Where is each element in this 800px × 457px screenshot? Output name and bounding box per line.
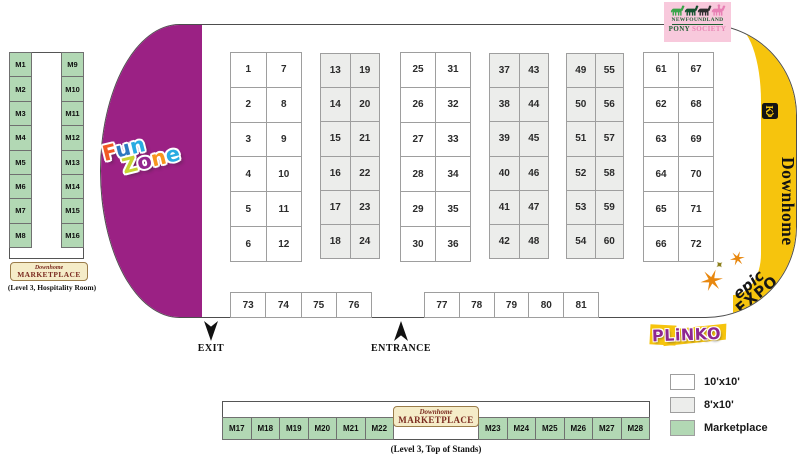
booth-cell: 19 [351,54,380,87]
marketplace-row-m23-m28: M23M24M25M26M27M28 [478,417,650,440]
booth-cell: 34 [436,157,470,191]
marketplace-cell: M15 [62,199,83,222]
entrance-arrow-icon [394,321,408,341]
legend: 10'x10' 8'x10' Marketplace [670,374,768,443]
booth-cell: 61 [644,53,678,87]
booth-cell: 71 [679,192,713,226]
booth-cell: 39 [490,122,519,155]
left-marketplace-box: M1M2M3M4M5M6M7M8 M9M10M11M12M13M14M15M16 [9,52,84,259]
booth-cell: 32 [436,88,470,122]
bottom-marketplace-box: M17M18M19M20M21M22 M23M24M25M26M27M28 Do… [222,401,650,440]
legend-label: Marketplace [704,422,768,434]
downhome-wordmark: Downhome [760,121,798,281]
marketplace-cell: M1 [10,53,31,76]
newfoundland-pony-society-box: NEWFOUNDLAND PONY SOCIETY [664,2,731,42]
booth-cell: 15 [321,122,350,155]
booth-cell: 62 [644,88,678,122]
booth-cell: 22 [351,157,380,190]
booth-cell: 66 [644,227,678,261]
marketplace-cell: M6 [10,175,31,198]
marketplace-column-m9-m16: M9M10M11M12M13M14M15M16 [61,52,84,248]
booth-cell: 76 [337,293,371,317]
booth-cell: 44 [520,88,549,121]
booth-cell: 52 [567,157,595,190]
booth-cell: 56 [596,88,624,121]
booth-cell: 53 [567,191,595,224]
booth-cell: 57 [596,122,624,155]
marketplace-cell: M27 [593,418,621,439]
booth-cell: 55 [596,54,624,87]
booth-cell: 2 [231,88,266,122]
pony-society-name: NEWFOUNDLAND [672,17,724,25]
marketplace-cell: M26 [565,418,593,439]
marketplace-cell: M25 [536,418,564,439]
legend-row: 10'x10' [670,374,768,390]
marketplace-cell: M16 [62,224,83,247]
pony-silhouettes-icon [669,4,727,17]
booth-cell: 16 [321,157,350,190]
marketplace-cell: M20 [309,418,337,439]
marketplace-cell: M12 [62,126,83,149]
booth-cell: 49 [567,54,595,87]
marketplace-cell: M10 [62,77,83,100]
legend-label: 10'x10' [704,376,740,388]
plinko-logo: PLiNKO [648,321,733,352]
booth-cell: 72 [679,227,713,261]
booth-cell: 13 [321,54,350,87]
booth-cell: 26 [401,88,435,122]
marketplace-cell: M7 [10,199,31,222]
booth-cell: 50 [567,88,595,121]
plinko-text: PLiNKO [652,324,722,345]
marketplace-cell: M23 [479,418,507,439]
booth-cell: 18 [321,225,350,258]
booth-cell: 1 [231,53,266,87]
top-of-stands-caption: (Level 3, Top of Stands) [222,444,650,454]
booth-cell: 73 [231,293,265,317]
booth-cell: 46 [520,157,549,190]
booth-cell: 70 [679,157,713,191]
marketplace-cell: M11 [62,102,83,125]
booth-cell: 68 [679,88,713,122]
booth-cell: 67 [679,53,713,87]
booth-cell: 79 [495,293,529,317]
booth-cell: 80 [529,293,563,317]
booth-cell: 38 [490,88,519,121]
marketplace-cell: M19 [280,418,308,439]
booth-cell: 78 [460,293,494,317]
booth-cell: 7 [267,53,302,87]
booth-cell: 9 [267,123,302,157]
badge-main-text: MARKETPLACE [17,271,81,279]
booth-cell: 5 [231,192,266,226]
booth-cell: 81 [564,293,598,317]
exit-label: EXIT [186,343,236,354]
booth-cell: 51 [567,122,595,155]
exit-arrow-icon [204,321,218,341]
booth-cell: 14 [321,88,350,121]
booth-cell: 35 [436,192,470,226]
booth-cell: 37 [490,54,519,87]
marketplace-cell: M18 [252,418,280,439]
booth-cell: 6 [231,227,266,261]
booth-cell: 25 [401,53,435,87]
booth-cell: 47 [520,191,549,224]
booth-cell: 30 [401,227,435,261]
booth-cell: 20 [351,88,380,121]
booth-cell: 33 [436,123,470,157]
booth-cell: 21 [351,122,380,155]
booth-group-25-36: 252627282930313233343536 [400,52,471,262]
booth-cell: 24 [351,225,380,258]
booth-cell: 40 [490,157,519,190]
booth-cell: 69 [679,123,713,157]
booth-group-1-12: 123456789101112 [230,52,302,262]
hospitality-room-caption: (Level 3, Hospitality Room) [0,283,104,292]
marketplace-cell: M4 [10,126,31,149]
legend-row: Marketplace [670,420,768,436]
booth-cell: 48 [520,225,549,258]
booth-cell: 75 [302,293,336,317]
downhome-logo-icon: K [762,103,778,119]
booth-cell: 64 [644,157,678,191]
booth-cell: 28 [401,157,435,191]
booth-cell: 8 [267,88,302,122]
booth-cell: 77 [425,293,459,317]
booth-group-49-60: 495051525354555657585960 [566,53,624,259]
booth-group-13-24: 131415161718192021222324 [320,53,380,259]
booth-cell: 29 [401,192,435,226]
booth-cell: 12 [267,227,302,261]
pony-word: PONY [669,25,690,33]
marketplace-cell: M8 [10,224,31,247]
booth-cell: 60 [596,225,624,258]
entrance-label: ENTRANCE [355,343,447,354]
booth-cell: 27 [401,123,435,157]
marketplace-cell: M21 [337,418,365,439]
booth-cell: 45 [520,122,549,155]
booth-cell: 59 [596,191,624,224]
marketplace-cell: M13 [62,151,83,174]
booth-cell: 74 [266,293,300,317]
marketplace-cell: M3 [10,102,31,125]
booth-cell: 11 [267,192,302,226]
legend-label: 8'x10' [704,399,734,411]
booth-cell: 36 [436,227,470,261]
booth-cell: 58 [596,157,624,190]
downhome-marketplace-badge: Downhome MARKETPLACE [10,262,88,281]
downhome-marketplace-badge: Downhome MARKETPLACE [393,406,479,427]
pony-society-line2: PONY SOCIETY [669,25,727,33]
marketplace-cell: M14 [62,175,83,198]
booth-group-37-48: 373839404142434445464748 [489,53,549,259]
booth-row-73-76: 73747576 [230,292,372,318]
marketplace-column-m1-m8: M1M2M3M4M5M6M7M8 [9,52,32,248]
legend-swatch-marketplace [670,420,695,436]
booth-cell: 42 [490,225,519,258]
booth-cell: 3 [231,123,266,157]
marketplace-cell: M5 [10,151,31,174]
booth-group-61-72: 616263646566676869707172 [643,52,714,262]
marketplace-cell: M28 [622,418,650,439]
svg-text:K: K [763,106,774,114]
booth-cell: 31 [436,53,470,87]
booth-cell: 41 [490,191,519,224]
booth-cell: 65 [644,192,678,226]
booth-cell: 4 [231,157,266,191]
booth-cell: 63 [644,123,678,157]
legend-swatch-8x10 [670,397,695,413]
booth-cell: 54 [567,225,595,258]
legend-swatch-10x10 [670,374,695,390]
booth-cell: 43 [520,54,549,87]
marketplace-cell: M2 [10,77,31,100]
expo-floor-plan: ✶ ✶ ✦ ✦ ✦ epic EXPO 123456789101112 1314… [0,0,800,457]
society-word: SOCIETY [692,25,726,33]
booth-cell: 23 [351,191,380,224]
badge-main-text: MARKETPLACE [398,416,473,425]
booth-cell: 10 [267,157,302,191]
marketplace-cell: M24 [508,418,536,439]
booth-cell: 17 [321,191,350,224]
marketplace-cell: M22 [366,418,394,439]
marketplace-row-m17-m22: M17M18M19M20M21M22 [222,417,394,440]
marketplace-cell: M17 [223,418,251,439]
legend-row: 8'x10' [670,397,768,413]
marketplace-cell: M9 [62,53,83,76]
booth-row-77-81: 7778798081 [424,292,599,318]
